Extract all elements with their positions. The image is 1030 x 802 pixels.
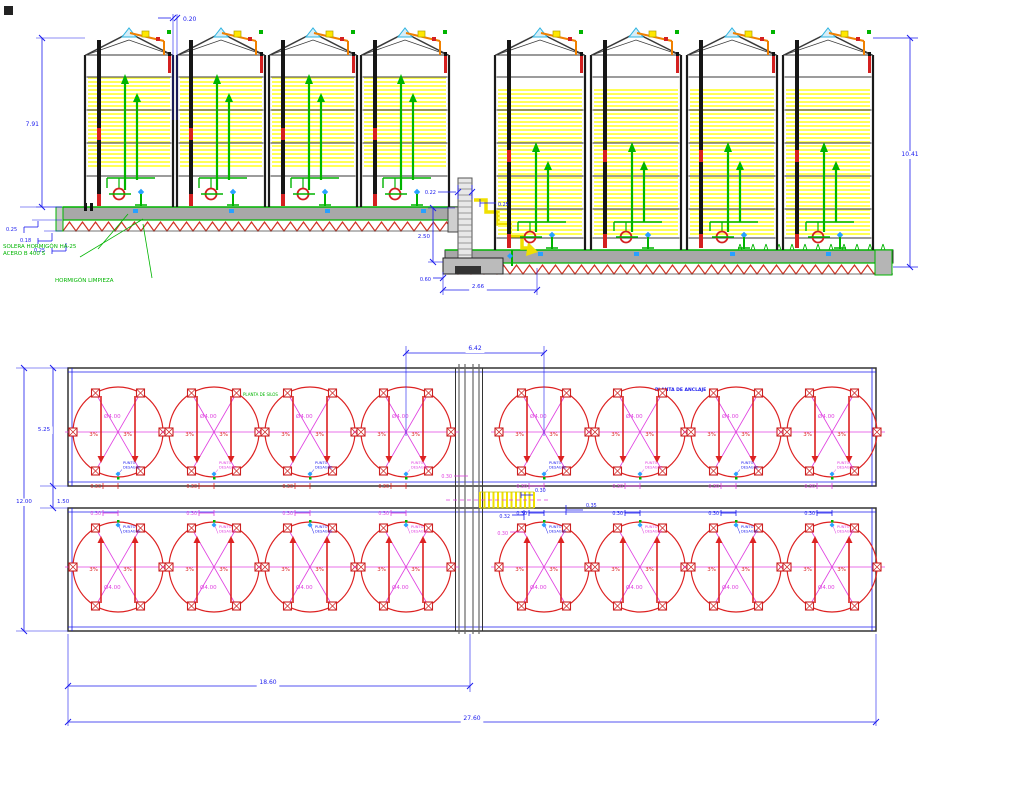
roof-apex: [725, 28, 739, 37]
roof-apex: [122, 28, 136, 37]
svg-text:Ø4.00: Ø4.00: [722, 584, 739, 591]
silo-1: [495, 28, 585, 250]
svg-text:0.30: 0.30: [186, 511, 197, 517]
svg-text:DESAGÜE: DESAGÜE: [741, 529, 759, 534]
svg-text:DESAGÜE: DESAGÜE: [549, 465, 567, 470]
silo-footprint-r2-6: 3%3%Ø4.000.30PUNTODESAGÜE: [587, 510, 693, 612]
silo-footprint-r2-5: 3%3%Ø4.000.30PUNTODESAGÜE: [491, 510, 597, 612]
roof-apex: [214, 28, 228, 37]
svg-text:0.30: 0.30: [516, 484, 527, 490]
silo-4: [783, 28, 873, 250]
silo-1: [85, 28, 173, 207]
silo-footprint-r2-4: 3%3%Ø4.000.30PUNTODESAGÜE: [353, 510, 459, 612]
svg-text:0.30: 0.30: [186, 484, 197, 490]
svg-text:3%: 3%: [185, 432, 194, 438]
silo-footprint-r2-1: 3%3%Ø4.000.30PUNTODESAGÜE: [65, 510, 171, 612]
ladder-post: [97, 40, 101, 205]
svg-text:3%: 3%: [837, 432, 846, 438]
ladder-post: [795, 40, 799, 248]
svg-text:0.30: 0.30: [708, 511, 719, 517]
svg-text:3%: 3%: [707, 567, 716, 573]
ladder-post: [373, 40, 377, 205]
plan-view: PLANTA DE SILOSPLANTA DE ANCLAJE3%3%Ø4.0…: [13, 345, 885, 726]
silo-footprint-r1-7: 3%3%Ø4.000.30PUNTODESAGÜE: [683, 387, 789, 490]
svg-text:3%: 3%: [315, 432, 324, 438]
svg-text:3%: 3%: [89, 432, 98, 438]
svg-text:0.30: 0.30: [441, 474, 452, 480]
cad-canvas: Silos - alzado y planta de cimentación 0…: [0, 0, 1030, 802]
svg-text:0.30: 0.30: [90, 484, 101, 490]
svg-text:PUNTO: PUNTO: [315, 525, 328, 529]
ladder-post: [699, 40, 703, 248]
svg-text:3%: 3%: [315, 567, 324, 573]
svg-text:PUNTO: PUNTO: [645, 461, 658, 465]
svg-text:PUNTO: PUNTO: [219, 461, 232, 465]
plan-dimensions: 6.425.251.5012.0018.6027.600.300.350.320…: [13, 345, 879, 726]
svg-text:18.60: 18.60: [259, 679, 276, 686]
ladder-post: [603, 40, 607, 248]
svg-text:3%: 3%: [645, 567, 654, 573]
svg-text:3%: 3%: [741, 432, 750, 438]
plan-label-left: PLANTA DE SILOS: [243, 392, 278, 397]
svg-text:0.30: 0.30: [535, 488, 546, 494]
svg-text:Ø4.00: Ø4.00: [530, 584, 547, 591]
silo-2: [177, 28, 265, 207]
svg-text:0.35: 0.35: [586, 503, 597, 509]
svg-text:PUNTO: PUNTO: [411, 461, 424, 465]
ladder-post: [281, 40, 285, 205]
svg-text:Ø4.00: Ø4.00: [530, 413, 547, 420]
svg-text:0.20: 0.20: [183, 16, 197, 23]
svg-text:0.32: 0.32: [499, 514, 510, 520]
svg-text:3%: 3%: [611, 567, 620, 573]
svg-text:0.30: 0.30: [282, 511, 293, 517]
svg-text:0.30: 0.30: [708, 484, 719, 490]
svg-text:3%: 3%: [741, 567, 750, 573]
ladder-post: [189, 40, 193, 205]
svg-text:0.25: 0.25: [498, 202, 509, 208]
silo-2: [591, 28, 681, 250]
svg-text:PUNTO: PUNTO: [741, 525, 754, 529]
svg-text:Ø4.00: Ø4.00: [392, 584, 409, 591]
roof-apex: [306, 28, 320, 37]
svg-text:DESAGÜE: DESAGÜE: [411, 529, 429, 534]
svg-text:PUNTO: PUNTO: [219, 525, 232, 529]
silo-footprint-r1-1: 3%3%Ø4.000.30PUNTODESAGÜE: [65, 387, 171, 490]
svg-text:3%: 3%: [411, 567, 420, 573]
svg-text:PUNTO: PUNTO: [411, 525, 424, 529]
svg-text:3%: 3%: [645, 432, 654, 438]
svg-text:1.50: 1.50: [57, 499, 70, 505]
svg-text:2.50: 2.50: [418, 234, 431, 240]
foundation-slab-left: [56, 203, 458, 231]
svg-text:Ø4.00: Ø4.00: [200, 584, 217, 591]
svg-text:7.91: 7.91: [26, 121, 40, 128]
svg-text:12.00: 12.00: [16, 499, 32, 505]
svg-text:Ø4.00: Ø4.00: [104, 413, 121, 420]
silo-footprint-r2-8: 3%3%Ø4.000.30PUNTODESAGÜE: [779, 510, 885, 612]
svg-text:Ø4.00: Ø4.00: [722, 413, 739, 420]
svg-text:0.30: 0.30: [804, 484, 815, 490]
svg-text:DESAGÜE: DESAGÜE: [315, 465, 333, 470]
svg-text:3%: 3%: [219, 567, 228, 573]
svg-text:Ø4.00: Ø4.00: [818, 413, 835, 420]
svg-text:DESAGÜE: DESAGÜE: [123, 529, 141, 534]
svg-text:Ø4.00: Ø4.00: [296, 584, 313, 591]
stair-hatch: [446, 492, 548, 508]
svg-text:3%: 3%: [219, 432, 228, 438]
svg-text:3%: 3%: [377, 567, 386, 573]
svg-text:DESAGÜE: DESAGÜE: [219, 529, 237, 534]
ladder-post: [507, 40, 511, 248]
silo-footprint-r2-7: 3%3%Ø4.000.30PUNTODESAGÜE: [683, 510, 789, 612]
svg-text:3%: 3%: [611, 432, 620, 438]
svg-text:3%: 3%: [411, 432, 420, 438]
svg-text:DESAGÜE: DESAGÜE: [837, 465, 855, 470]
roof-apex: [629, 28, 643, 37]
roof-apex: [533, 28, 547, 37]
svg-text:Ø4.00: Ø4.00: [296, 413, 313, 420]
svg-text:DESAGÜE: DESAGÜE: [411, 465, 429, 470]
silo-footprint-r2-3: 3%3%Ø4.000.30PUNTODESAGÜE: [257, 510, 363, 612]
silo-footprint-r2-2: 3%3%Ø4.000.30PUNTODESAGÜE: [161, 510, 267, 612]
svg-text:3%: 3%: [123, 567, 132, 573]
silo-3: [269, 28, 357, 207]
roof-apex: [398, 28, 412, 37]
svg-text:PUNTO: PUNTO: [837, 525, 850, 529]
svg-text:3%: 3%: [89, 567, 98, 573]
label-solera: SOLERA HORMIGÓN HA-25: [3, 243, 77, 250]
svg-text:3%: 3%: [549, 567, 558, 573]
svg-text:PUNTO: PUNTO: [645, 525, 658, 529]
svg-text:6.42: 6.42: [468, 345, 482, 352]
svg-text:0.30: 0.30: [282, 484, 293, 490]
svg-text:0.22: 0.22: [425, 190, 436, 196]
svg-text:DESAGÜE: DESAGÜE: [645, 465, 663, 470]
silo-footprint-r1-8: 3%3%Ø4.000.30PUNTODESAGÜE: [779, 387, 885, 490]
drawing-svg: 0.207.910.250.180.2510.410.220.252.500.6…: [0, 0, 1030, 802]
svg-text:3%: 3%: [837, 567, 846, 573]
silo-footprint-r1-6: 3%3%Ø4.000.30PUNTODESAGÜE: [587, 387, 693, 490]
svg-text:Ø4.00: Ø4.00: [200, 413, 217, 420]
svg-text:3%: 3%: [549, 432, 558, 438]
svg-text:Ø4.00: Ø4.00: [626, 413, 643, 420]
svg-text:3%: 3%: [803, 567, 812, 573]
svg-text:3%: 3%: [281, 432, 290, 438]
right-silo-group: [495, 28, 873, 250]
silo-3: [687, 28, 777, 250]
svg-text:DESAGÜE: DESAGÜE: [645, 529, 663, 534]
svg-text:PUNTO: PUNTO: [123, 461, 136, 465]
concrete-labels: SOLERA HORMIGÓN HA-25ACERO B 400 SHORMIG…: [3, 214, 152, 284]
svg-text:PUNTO: PUNTO: [123, 525, 136, 529]
svg-text:Ø4.00: Ø4.00: [818, 584, 835, 591]
svg-text:3%: 3%: [281, 567, 290, 573]
roof-apex: [821, 28, 835, 37]
svg-text:3%: 3%: [707, 432, 716, 438]
svg-text:DESAGÜE: DESAGÜE: [315, 529, 333, 534]
svg-text:3%: 3%: [377, 432, 386, 438]
svg-text:0.30: 0.30: [612, 484, 623, 490]
svg-text:3%: 3%: [515, 432, 524, 438]
svg-text:ACERO B 400 S: ACERO B 400 S: [3, 251, 46, 257]
svg-text:PUNTO: PUNTO: [315, 461, 328, 465]
svg-text:0.25: 0.25: [6, 227, 17, 233]
left-silo-group: [85, 28, 449, 207]
svg-text:3%: 3%: [803, 432, 812, 438]
svg-text:2.66: 2.66: [472, 284, 485, 290]
silo-footprint-r1-3: 3%3%Ø4.000.30PUNTODESAGÜE: [257, 387, 363, 490]
svg-text:DESAGÜE: DESAGÜE: [837, 529, 855, 534]
svg-text:Ø4.00: Ø4.00: [392, 413, 409, 420]
silo-footprint-r1-2: 3%3%Ø4.000.30PUNTODESAGÜE: [161, 387, 267, 490]
svg-text:Ø4.00: Ø4.00: [626, 584, 643, 591]
svg-text:0.30: 0.30: [612, 511, 623, 517]
svg-text:10.41: 10.41: [901, 151, 918, 158]
label-limpieza: HORMIGÓN LIMPIEZA: [55, 277, 114, 284]
svg-text:3%: 3%: [123, 432, 132, 438]
svg-text:0.30: 0.30: [378, 511, 389, 517]
svg-text:0.30: 0.30: [804, 511, 815, 517]
svg-text:3%: 3%: [185, 567, 194, 573]
silo-4: [361, 28, 449, 207]
svg-text:0.30: 0.30: [516, 511, 527, 517]
svg-text:0.30: 0.30: [378, 484, 389, 490]
svg-text:DESAGÜE: DESAGÜE: [219, 465, 237, 470]
svg-text:27.60: 27.60: [463, 715, 480, 722]
svg-text:DESAGÜE: DESAGÜE: [741, 465, 759, 470]
svg-text:5.25: 5.25: [38, 427, 51, 433]
svg-text:Ø4.00: Ø4.00: [104, 584, 121, 591]
svg-text:PUNTO: PUNTO: [837, 461, 850, 465]
svg-text:3%: 3%: [515, 567, 524, 573]
svg-text:PUNTO: PUNTO: [549, 525, 562, 529]
svg-text:PUNTO: PUNTO: [549, 461, 562, 465]
svg-text:DESAGÜE: DESAGÜE: [123, 465, 141, 470]
svg-text:0.30: 0.30: [497, 531, 508, 537]
elevation-view: 0.207.910.250.180.2510.410.220.252.500.6…: [3, 6, 921, 295]
svg-text:0.60: 0.60: [420, 277, 431, 283]
expansion-joint: [456, 364, 483, 634]
svg-text:0.30: 0.30: [90, 511, 101, 517]
svg-text:PUNTO: PUNTO: [741, 461, 754, 465]
svg-text:DESAGÜE: DESAGÜE: [549, 529, 567, 534]
